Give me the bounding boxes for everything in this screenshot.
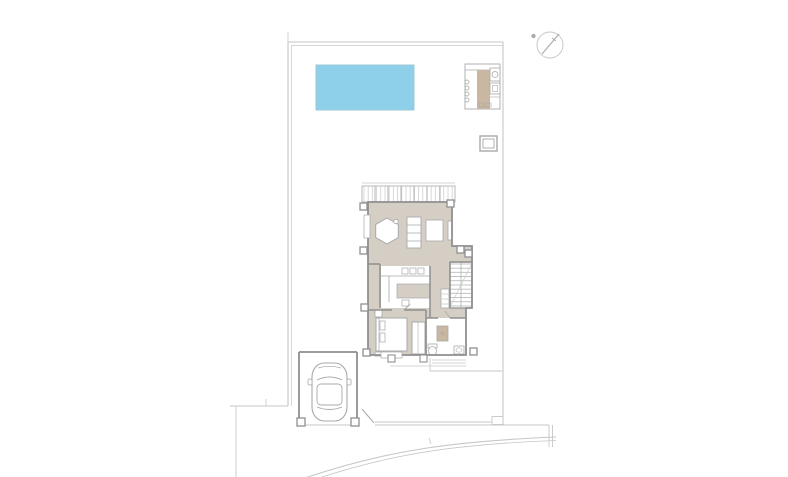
column (360, 203, 367, 210)
stair-radiator (441, 289, 449, 308)
hob-icon (402, 268, 408, 274)
house (360, 183, 502, 371)
stool-icon (465, 86, 469, 90)
driveway-gate (362, 409, 374, 423)
porch-post (420, 355, 427, 362)
chair-icon (394, 219, 398, 223)
sink-unit (490, 83, 500, 94)
swimming-pool (316, 65, 414, 110)
kitchen-sink (402, 300, 409, 306)
car (308, 363, 351, 421)
column (465, 250, 472, 257)
site-plan-drawing (0, 0, 788, 477)
grill-unit (490, 68, 500, 81)
gate-pier (297, 418, 305, 426)
wardrobe (412, 322, 425, 354)
porch-post (388, 355, 395, 362)
shower (437, 326, 448, 341)
car-mirror-icon (347, 379, 351, 385)
outdoor-kitchen (465, 64, 500, 109)
stool-icon (465, 80, 469, 84)
bottom-wall-lines (375, 422, 503, 425)
pillow-icon (380, 333, 385, 342)
window-west (364, 215, 370, 238)
kitchen-island (397, 284, 430, 298)
column (447, 200, 454, 207)
shelving-unit (407, 217, 421, 248)
entry-steps (388, 355, 502, 371)
step-lines (390, 360, 466, 366)
north-compass (532, 32, 563, 58)
road-tick (429, 438, 431, 444)
washbasin (454, 346, 464, 354)
site-plan-page (0, 0, 788, 477)
gate-pier (351, 418, 359, 426)
street-lines (230, 399, 288, 477)
column (457, 246, 464, 253)
bathroom (427, 318, 466, 356)
north-dot-icon (532, 34, 535, 37)
stool-icon (465, 92, 469, 96)
parking-bay (297, 352, 359, 426)
nightstand (375, 310, 382, 317)
column (361, 304, 368, 311)
car-mirror-icon (308, 379, 312, 385)
boundary-wall (362, 409, 553, 447)
sidewalk-ticks (549, 425, 553, 447)
deck-hatching (362, 186, 455, 202)
kitchen (381, 266, 430, 308)
compass-needle-icon (542, 34, 559, 54)
wall-notch (492, 417, 503, 425)
column (470, 348, 477, 355)
roof-deck (362, 183, 455, 202)
utility-box (480, 136, 497, 151)
column (360, 247, 367, 254)
fridge-icon (418, 268, 424, 274)
stool-icon (465, 98, 469, 102)
rug (426, 220, 443, 241)
utility-box-outer (480, 136, 497, 151)
oven-icon (410, 268, 416, 274)
road-curve (305, 437, 556, 477)
pillow-icon (380, 321, 385, 330)
road-edge-inner (310, 441, 556, 477)
column (363, 349, 370, 356)
